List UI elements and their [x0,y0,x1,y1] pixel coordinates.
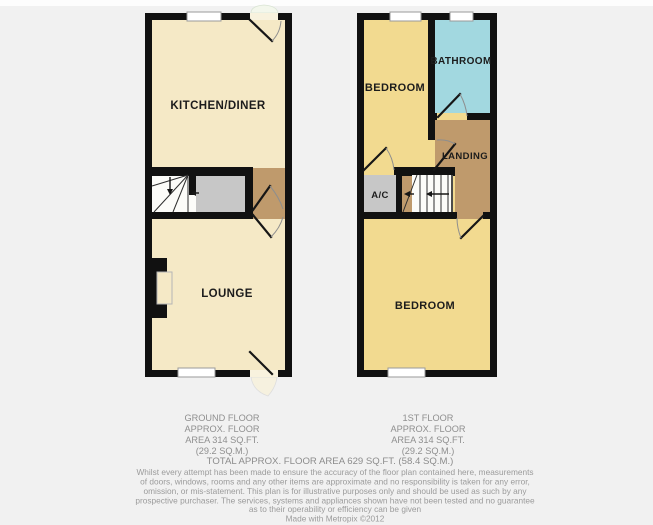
disclaimer-line2: of doors, windows, rooms and any other i… [140,477,530,487]
wall-bathroom-landing-left [428,113,437,120]
floorplan-page: KITCHEN/DINER LOUNGE [0,0,653,525]
window-kitchen [187,12,221,21]
window-bathroom [450,12,473,21]
wall-ac-stairs [396,167,402,219]
room-label-bathroom: BATHROOM [430,56,491,67]
first-caption-line3: AREA 314 SQ.FT. [391,435,465,445]
floorplan-svg: KITCHEN/DINER LOUNGE [0,0,653,525]
ground-caption-line4: (29.2 SQ.M.) [196,446,249,456]
window-bedroom-back [388,368,425,377]
disclaimer-line1: Whilst every attempt has been made to en… [136,467,533,477]
window-lounge [178,368,215,377]
wall-cupboard-hall [245,167,253,213]
wall-bedroom-bathroom [428,13,435,140]
disclaimer-line3: omission, or mis-statement. This plan is… [143,486,527,496]
wall-bathroom-landing-right [467,113,490,120]
page-top-margin [0,0,653,6]
first-floor-plan: BEDROOM BATHROOM LANDING A/C BEDROOM [357,12,497,377]
room-label-bedroom-front: BEDROOM [365,82,425,94]
room-entrance-hall [253,168,285,219]
room-cupboard [196,175,245,213]
room-label-bedroom-back: BEDROOM [395,300,455,312]
room-label-ac: A/C [371,190,389,201]
room-label-landing: LANDING [442,151,488,162]
ground-caption-line1: GROUND FLOOR [184,413,259,423]
disclaimer-line5: as to their operability or efficiency ca… [249,504,422,514]
wall-strip-bedroom-back [357,212,457,219]
first-caption-line4: (29.2 SQ.M.) [402,446,455,456]
wall-strip-lounge [152,212,253,219]
total-area-line: TOTAL APPROX. FLOOR AREA 629 SQ.FT. (58.… [207,456,454,467]
ground-floor-plan: KITCHEN/DINER LOUNGE [145,5,292,396]
metropix-credit: Made with Metropix ©2012 [286,514,385,524]
ground-caption-line2: APPROX. FLOOR [184,424,259,434]
wall-kitchen-strip [152,167,253,176]
room-landing-lower [455,168,490,219]
window-bedroom-front [390,12,421,21]
ground-caption-line3: AREA 314 SQ.FT. [185,435,259,445]
page-background [0,0,653,525]
first-caption-line2: APPROX. FLOOR [390,424,465,434]
room-label-lounge: LOUNGE [201,288,253,300]
first-caption-line1: 1ST FLOOR [403,413,454,423]
room-label-kitchen: KITCHEN/DINER [170,100,266,112]
wall-bedroom-stairs [394,167,455,176]
